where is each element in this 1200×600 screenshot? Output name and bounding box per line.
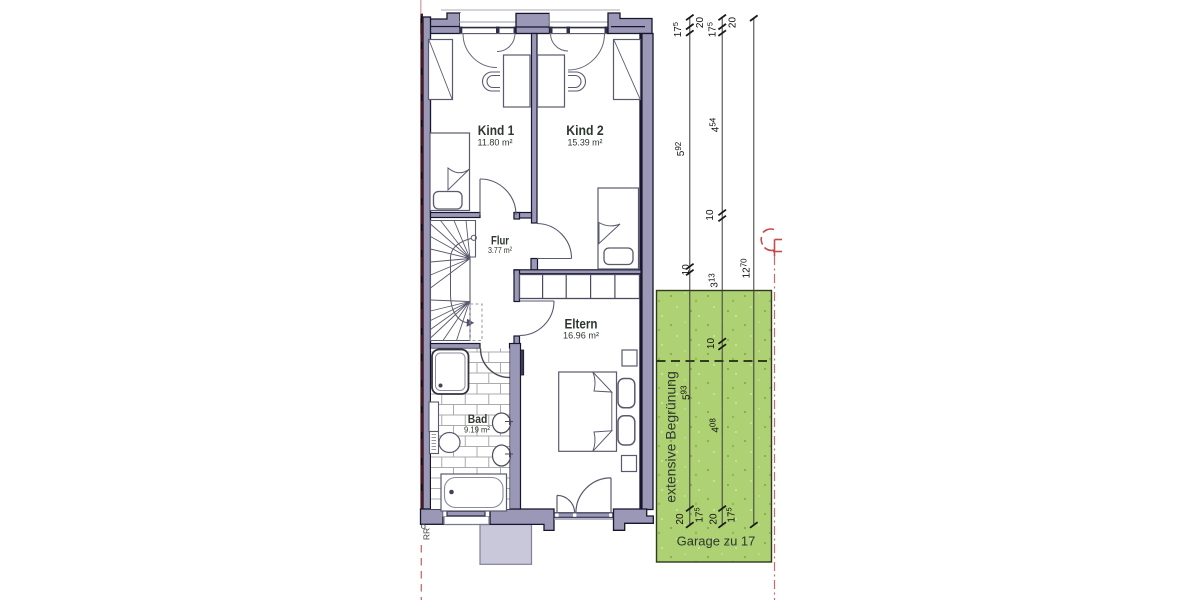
svg-text:20: 20 [728, 17, 739, 29]
svg-text:16.96 m²: 16.96 m² [563, 331, 599, 342]
svg-text:Eltern: Eltern [565, 317, 598, 332]
svg-text:10: 10 [705, 209, 716, 221]
svg-text:15.39 m²: 15.39 m² [568, 138, 603, 149]
svg-text:Kind 1: Kind 1 [478, 123, 515, 138]
svg-text:20: 20 [708, 513, 719, 525]
svg-text:10: 10 [706, 338, 717, 350]
svg-text:11.80 m²: 11.80 m² [478, 138, 513, 149]
svg-text:3.77 m²: 3.77 m² [488, 245, 512, 255]
svg-text:10: 10 [681, 264, 692, 276]
svg-text:9.19 m²: 9.19 m² [464, 425, 490, 435]
svg-text:Garage zu 17: Garage zu 17 [677, 534, 756, 549]
svg-text:Kind 2: Kind 2 [566, 123, 604, 138]
svg-text:extensive Begrünung: extensive Begrünung [663, 371, 679, 503]
svg-text:RR: RR [422, 528, 432, 540]
svg-text:20: 20 [675, 513, 686, 525]
